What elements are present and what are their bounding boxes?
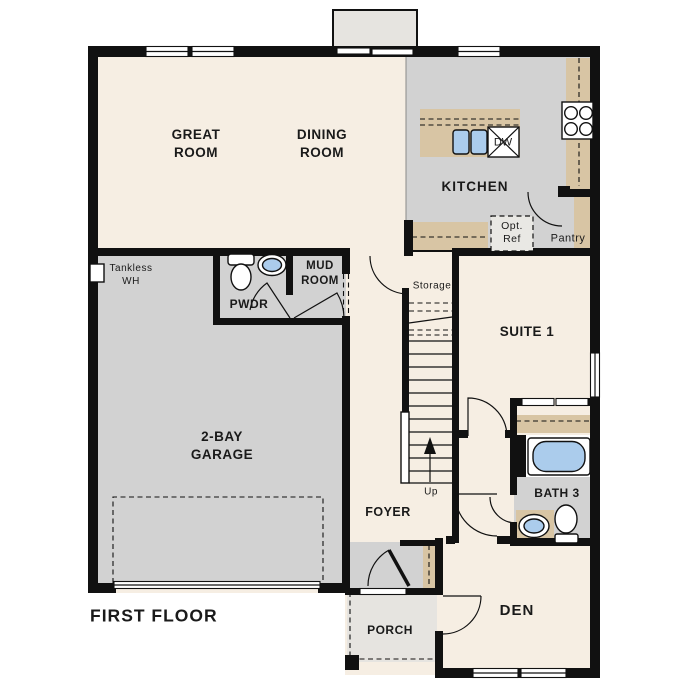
label-dishwasher: DW (494, 136, 512, 151)
label-porch: PORCH (367, 623, 413, 639)
front-door-threshold (360, 589, 406, 595)
burner (565, 107, 578, 120)
floor-plan: GREAT ROOM DINING ROOM KITCHEN Pantry Op… (0, 0, 687, 687)
bath3-sink-basin (524, 519, 544, 533)
toilet-bowl (231, 264, 251, 290)
powder-sink-basin (263, 259, 282, 272)
kitchen-sink-basin (453, 130, 469, 154)
tankless-water-heater (90, 264, 104, 282)
bump-out-opening (372, 49, 413, 55)
kitchen-sink-basin (471, 130, 487, 154)
label-opt-ref: Opt. Ref (501, 220, 523, 246)
closet-slider-door (522, 399, 554, 406)
room-entry-vestibule (348, 542, 424, 590)
label-bath-3: BATH 3 (534, 486, 579, 502)
label-stairs-up: Up (424, 485, 438, 498)
label-suite-1: SUITE 1 (500, 323, 555, 341)
floor-plan-drawing (0, 0, 687, 687)
label-kitchen: KITCHEN (442, 178, 509, 196)
bump-out-opening (337, 48, 370, 54)
closet-slider-door (556, 399, 588, 406)
bathtub-basin (533, 442, 585, 472)
stair-handrail (401, 412, 409, 483)
label-great-room: GREAT ROOM (172, 126, 221, 162)
burner (580, 107, 593, 120)
floor-plan-title: FIRST FLOOR (90, 604, 218, 627)
bath3-toilet-base (555, 534, 578, 543)
label-tankless-wh: Tankless WH (110, 262, 153, 288)
label-mud-room: MUD ROOM (301, 259, 339, 289)
label-powder-room: PWDR (230, 297, 269, 313)
label-den: DEN (500, 601, 535, 621)
burner (580, 123, 593, 136)
suite-closet-shelf (516, 415, 593, 433)
bump-out (333, 10, 417, 50)
label-pantry: Pantry (551, 232, 586, 247)
bath3-toilet-bowl (555, 505, 577, 533)
label-dining-room: DINING ROOM (297, 126, 347, 162)
label-foyer: FOYER (365, 504, 411, 521)
kitchen-counter-bottom (412, 222, 488, 250)
label-garage: 2-BAY GARAGE (191, 428, 253, 464)
label-storage: Storage (413, 279, 452, 292)
burner (565, 123, 578, 136)
